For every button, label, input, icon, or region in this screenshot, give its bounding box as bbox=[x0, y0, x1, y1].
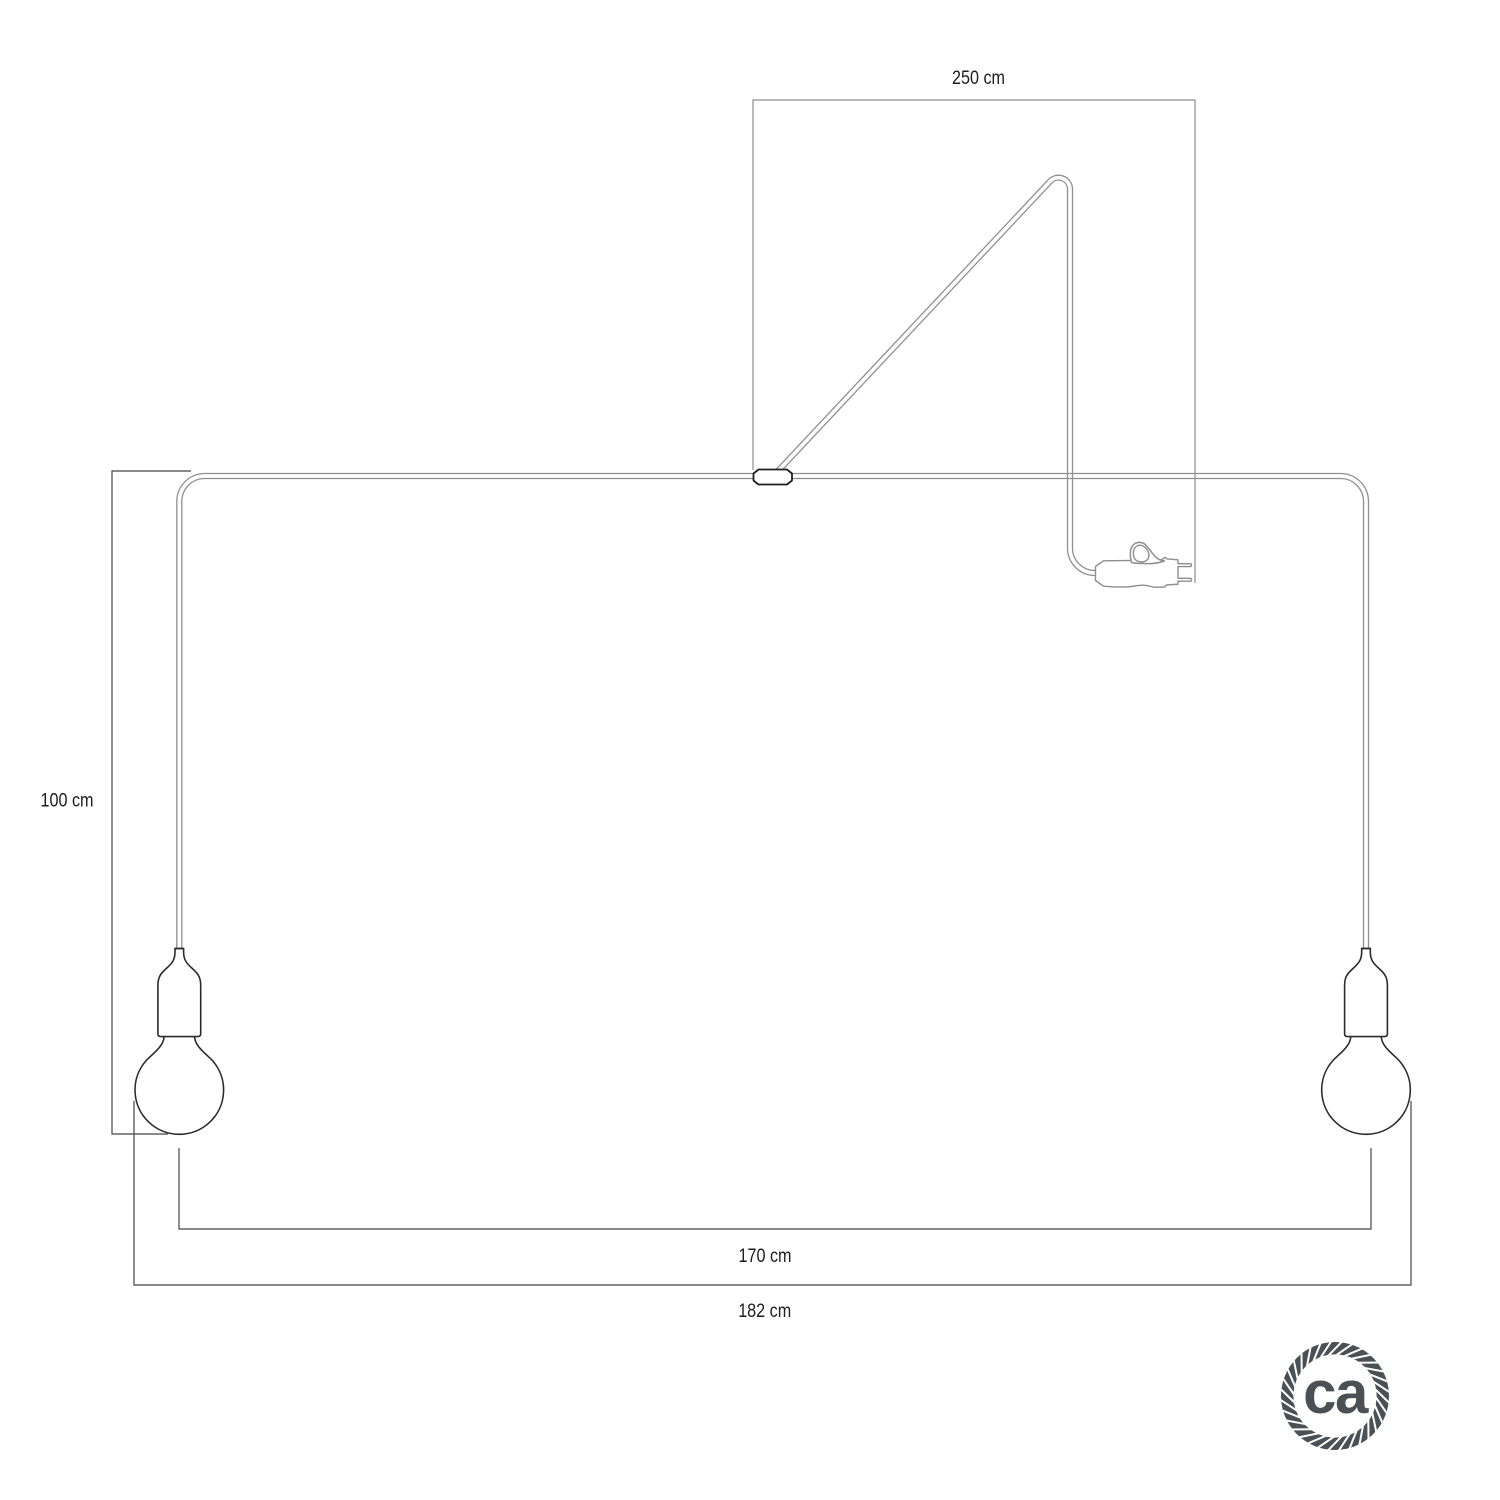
svg-text:ca: ca bbox=[1303, 1359, 1369, 1426]
svg-text:250 cm: 250 cm bbox=[952, 68, 1005, 89]
svg-text:182 cm: 182 cm bbox=[738, 1301, 791, 1322]
svg-text:170 cm: 170 cm bbox=[739, 1246, 792, 1267]
svg-text:100 cm: 100 cm bbox=[41, 791, 94, 812]
